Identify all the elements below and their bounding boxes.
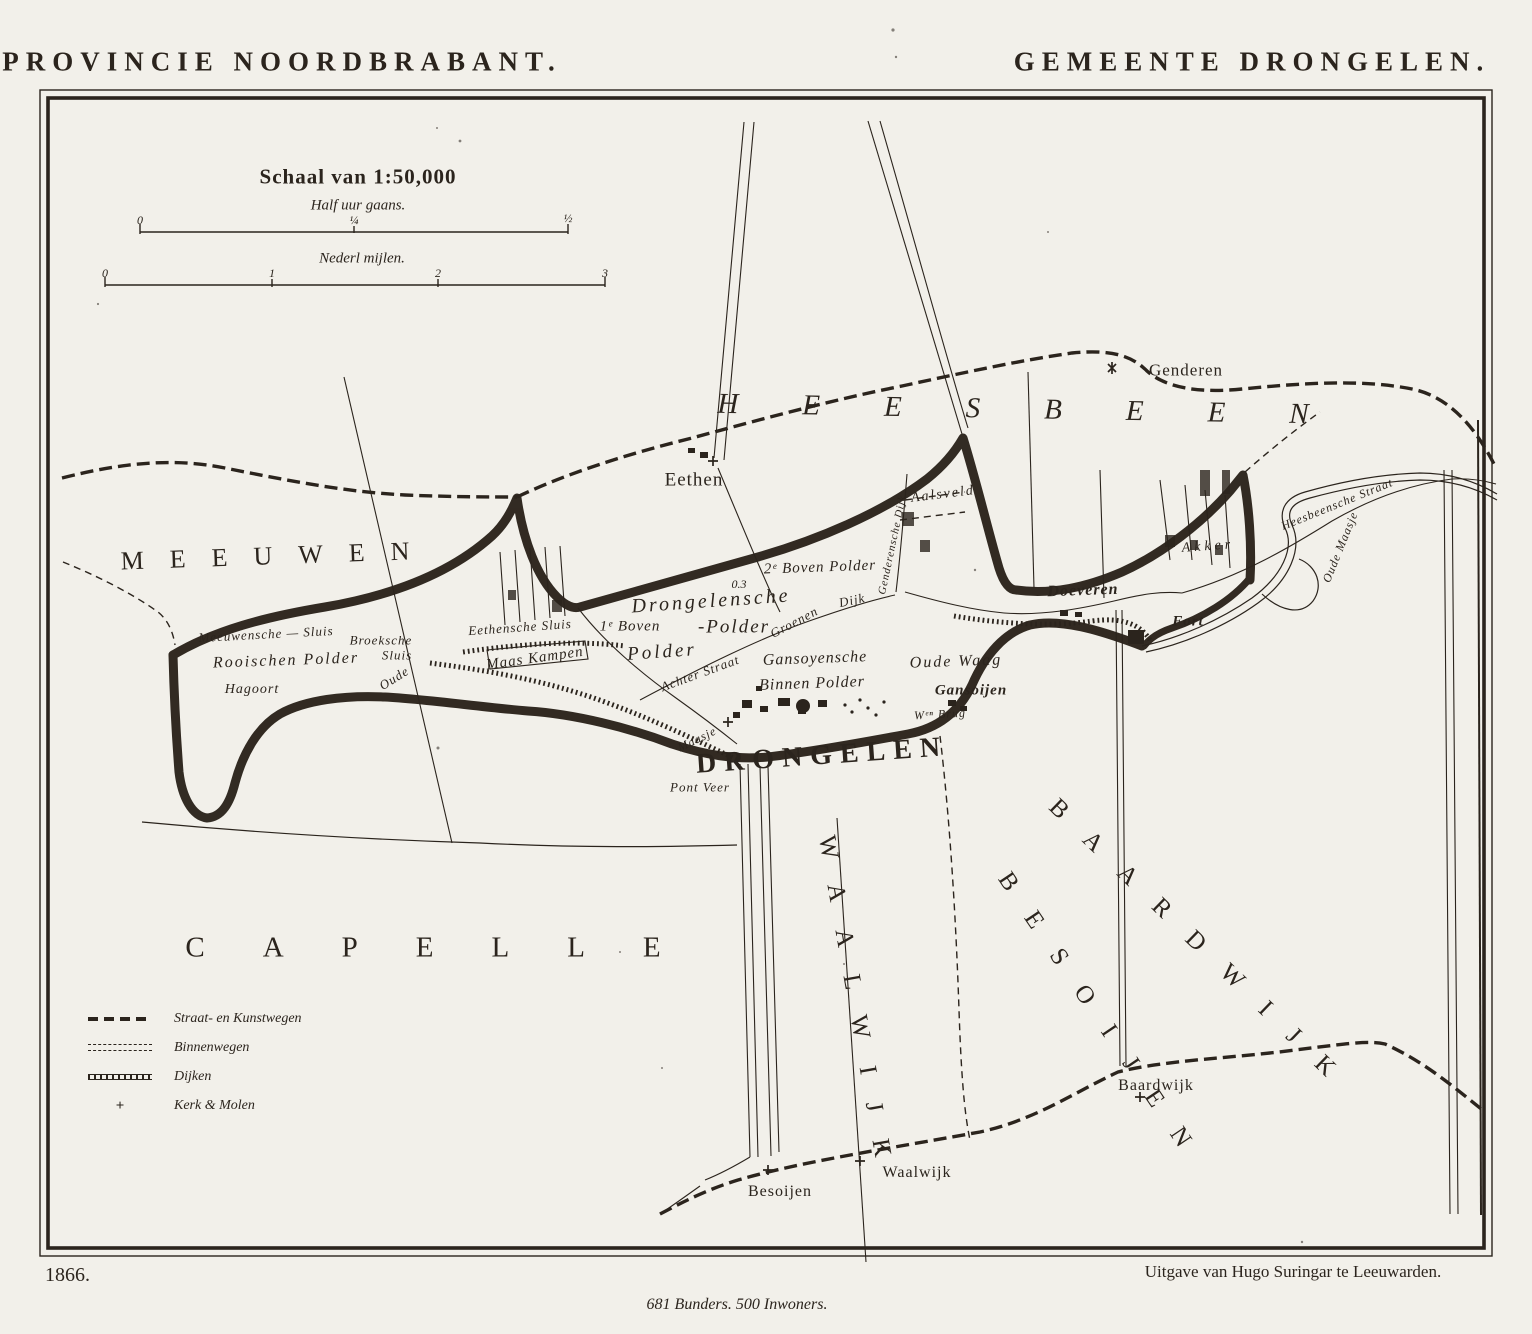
- page-title-province: PROVINCIE NOORDBRABANT.: [2, 47, 562, 78]
- page-title-municipality: GEMEENTE DRONGELEN.: [1014, 47, 1491, 78]
- church-cross-icon: +: [88, 1098, 152, 1114]
- map-label-boven1-polder: 1ᵉ Boven: [600, 620, 661, 635]
- scale-bar1-tick: ¼: [350, 213, 359, 228]
- scale-bar2-tick: 0: [102, 266, 108, 281]
- legend-row: Straat- en Kunstwegen: [88, 1004, 302, 1033]
- local-roads: [344, 121, 1496, 1262]
- settlement-blocks: [508, 448, 1230, 718]
- map-label-broeksche-sluis: Sluis: [382, 649, 412, 662]
- legend-label: Straat- en Kunstwegen: [174, 1011, 302, 1027]
- map-label-fort: Fort: [1172, 615, 1204, 630]
- map-label-oude-waag: Oude Waag: [909, 652, 1002, 671]
- map-label-height-mark: 0.3: [732, 578, 747, 590]
- map-label-wen-brug: Wᵉⁿ Brug: [914, 707, 966, 722]
- statistics-line: 681 Bunders. 500 Inwoners.: [647, 1296, 828, 1314]
- map-label-village-genderen: Genderen: [1149, 362, 1223, 379]
- road-double-icon: [88, 1044, 152, 1051]
- map-label-village-besoijen: Besoijen: [748, 1184, 812, 1200]
- publisher-credit: Uitgave van Hugo Suringar te Leeuwarden.: [1145, 1262, 1441, 1282]
- map-sheet: PROVINCIE NOORDBRABANT. GEMEENTE DRONGEL…: [0, 0, 1532, 1334]
- scale-bar1-tick: ½: [564, 211, 573, 226]
- map-label-pont-veer: Pont Veer: [670, 781, 730, 794]
- map-label-village-baardwijk: Baardwijk: [1118, 1078, 1194, 1094]
- legend-label: Binnenwegen: [174, 1040, 249, 1056]
- map-label-region-capelle: CAPELLE: [185, 934, 718, 963]
- map-label-village-waalwijk: Waalwijk: [883, 1165, 952, 1181]
- map-label-boven1-polder2: Polder: [627, 640, 698, 664]
- map-label-broeksche: Broeksche: [350, 634, 413, 647]
- map-label-drongelensche-polder: -Polder: [698, 618, 770, 637]
- road-dashed-icon: [88, 1017, 152, 1021]
- scale-bar2-tick: 3: [602, 266, 608, 281]
- map-label-village-eethen: Eethen: [665, 471, 724, 490]
- scale-heading: Schaal van 1:50,000: [260, 165, 457, 190]
- legend-label: Dijken: [174, 1069, 211, 1085]
- scale-bar2-tick: 2: [435, 266, 441, 281]
- dike-hatched-icon: [88, 1074, 152, 1080]
- scale-bar2-label: Nederl mijlen.: [319, 251, 405, 268]
- map-legend: Straat- en Kunstwegen Binnenwegen Dijken…: [88, 1004, 302, 1120]
- legend-row: Dijken: [88, 1062, 302, 1091]
- legend-label: Kerk & Molen: [174, 1098, 255, 1114]
- legend-row: Binnenwegen: [88, 1033, 302, 1062]
- map-label-hagoort: Hagoort: [225, 683, 279, 697]
- scale-bar1-label: Half uur gaans.: [311, 198, 406, 215]
- legend-row: + Kerk & Molen: [88, 1091, 302, 1120]
- scale-bar1-tick: 0: [137, 213, 143, 228]
- map-label-doeveren: Doeveren: [1047, 582, 1119, 600]
- map-label-gansoijen: Gansoijen: [935, 684, 1007, 699]
- scale-bar2-tick: 1: [269, 266, 275, 281]
- map-year: 1866.: [45, 1264, 90, 1287]
